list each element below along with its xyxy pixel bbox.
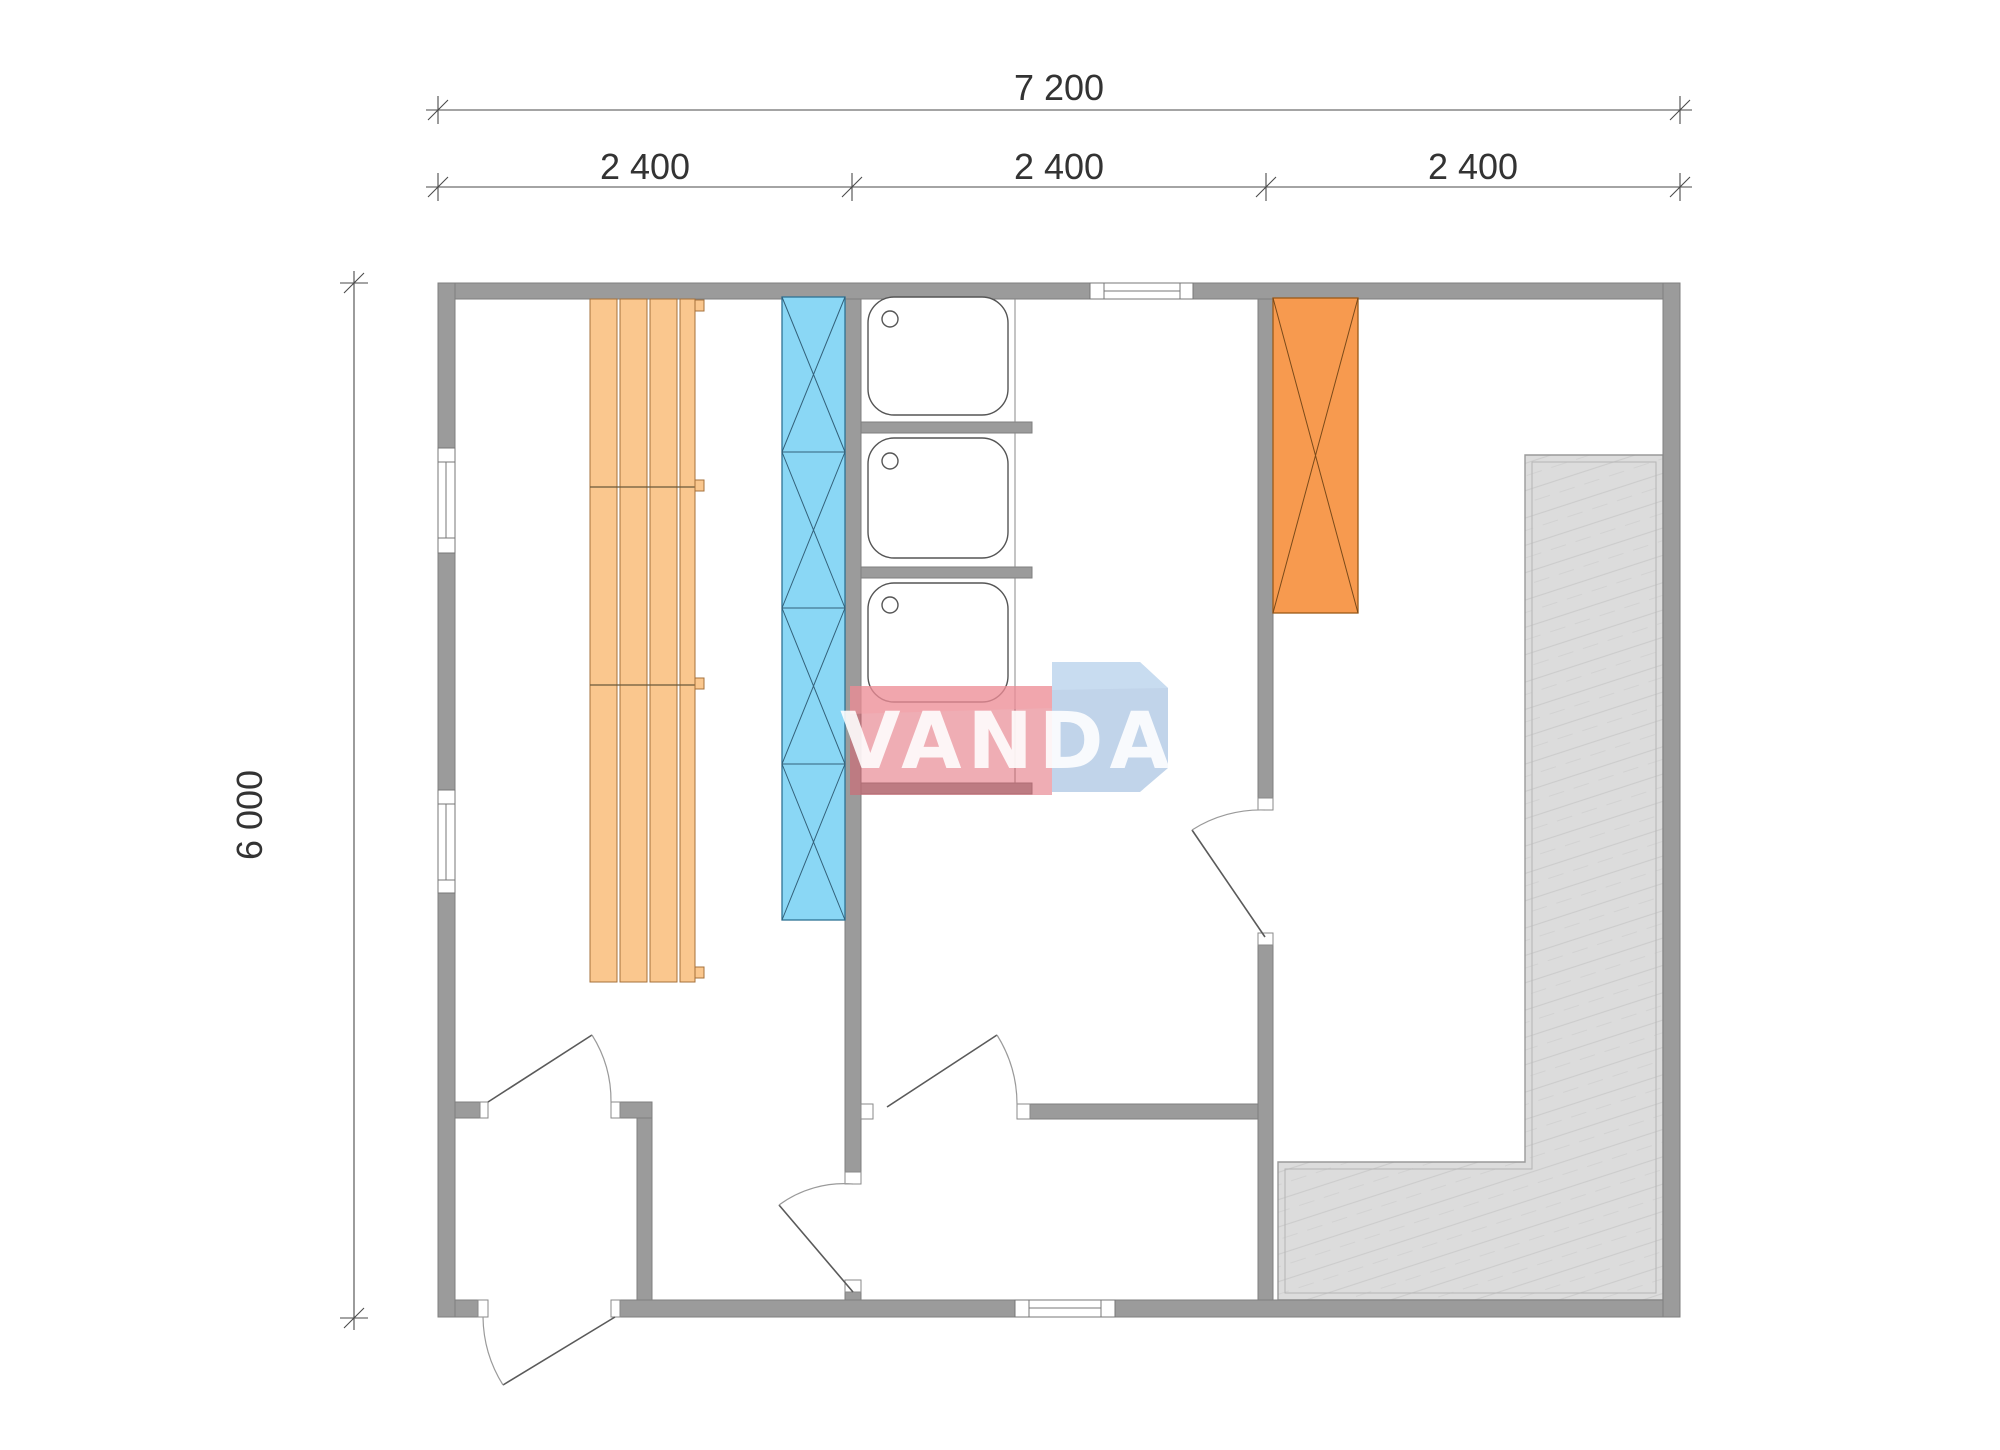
wall-vestibule-right bbox=[637, 1118, 652, 1300]
drain-icon bbox=[882, 453, 898, 469]
jamb bbox=[861, 1104, 873, 1119]
bench-plank bbox=[680, 299, 695, 982]
dim-label-segment-1: 2 400 bbox=[600, 146, 690, 187]
wall-exterior-top bbox=[438, 283, 1680, 299]
wall-vestibule-top-right bbox=[620, 1102, 652, 1118]
wall-exterior-right bbox=[1663, 283, 1680, 1317]
wall-interior-sauna-divider-stub bbox=[845, 1292, 861, 1300]
jamb bbox=[1258, 933, 1273, 945]
bench-cleat bbox=[695, 480, 704, 491]
jamb bbox=[478, 1300, 488, 1317]
window-left-2 bbox=[438, 790, 455, 893]
jamb bbox=[480, 1102, 488, 1118]
drain-icon bbox=[882, 597, 898, 613]
sauna-heater bbox=[1273, 298, 1358, 613]
exterior-door-opening bbox=[488, 1299, 611, 1318]
shower-tray-1 bbox=[868, 297, 1008, 415]
door-sauna-to-hall bbox=[779, 1184, 853, 1292]
floor-plan-drawing: VANDA 7 200 2 400 2 400 2 400 6 000 bbox=[0, 0, 2000, 1450]
window-left-1 bbox=[438, 448, 455, 553]
door-vestibule-to-sauna bbox=[488, 1035, 611, 1102]
watermark-blue-bevel bbox=[1052, 662, 1168, 690]
bench-plank bbox=[650, 299, 677, 982]
door-exterior-entrance bbox=[483, 1317, 615, 1385]
jamb bbox=[1258, 798, 1273, 810]
wall-shower-partition-1 bbox=[861, 422, 1032, 433]
window-top bbox=[1090, 283, 1193, 299]
wall-washroom-bottom bbox=[1030, 1104, 1258, 1119]
shower-tray-2 bbox=[868, 438, 1008, 558]
bench-cleat bbox=[695, 678, 704, 689]
wall-vestibule-top-left bbox=[455, 1102, 480, 1118]
drain-icon bbox=[882, 311, 898, 327]
jamb bbox=[845, 1172, 861, 1184]
wall-right-room-divider-upper bbox=[1258, 299, 1273, 798]
dim-label-height: 6 000 bbox=[229, 770, 270, 860]
shower-tray-3 bbox=[868, 583, 1008, 702]
blue-panel-unit bbox=[782, 297, 845, 920]
watermark-text: VANDA bbox=[840, 697, 1176, 787]
jamb bbox=[611, 1102, 620, 1118]
dim-label-segment-2: 2 400 bbox=[1014, 146, 1104, 187]
window-bottom bbox=[1015, 1300, 1115, 1317]
wall-right-room-divider-lower bbox=[1258, 945, 1273, 1300]
bench-plank bbox=[620, 299, 647, 982]
floor-plan-canvas: VANDA 7 200 2 400 2 400 2 400 6 000 bbox=[0, 0, 2000, 1450]
bench-cleat bbox=[695, 967, 704, 978]
dim-label-segment-3: 2 400 bbox=[1428, 146, 1518, 187]
jamb bbox=[611, 1300, 620, 1317]
door-washroom-to-right-room bbox=[1192, 810, 1265, 937]
door-hall-to-washroom bbox=[887, 1035, 1017, 1107]
jamb bbox=[1017, 1104, 1030, 1119]
bench-cleat bbox=[695, 300, 704, 311]
wall-shower-partition-2 bbox=[861, 567, 1032, 578]
sauna-benches bbox=[590, 299, 704, 982]
dim-label-total-width: 7 200 bbox=[1014, 67, 1104, 108]
bench-plank bbox=[590, 299, 617, 982]
